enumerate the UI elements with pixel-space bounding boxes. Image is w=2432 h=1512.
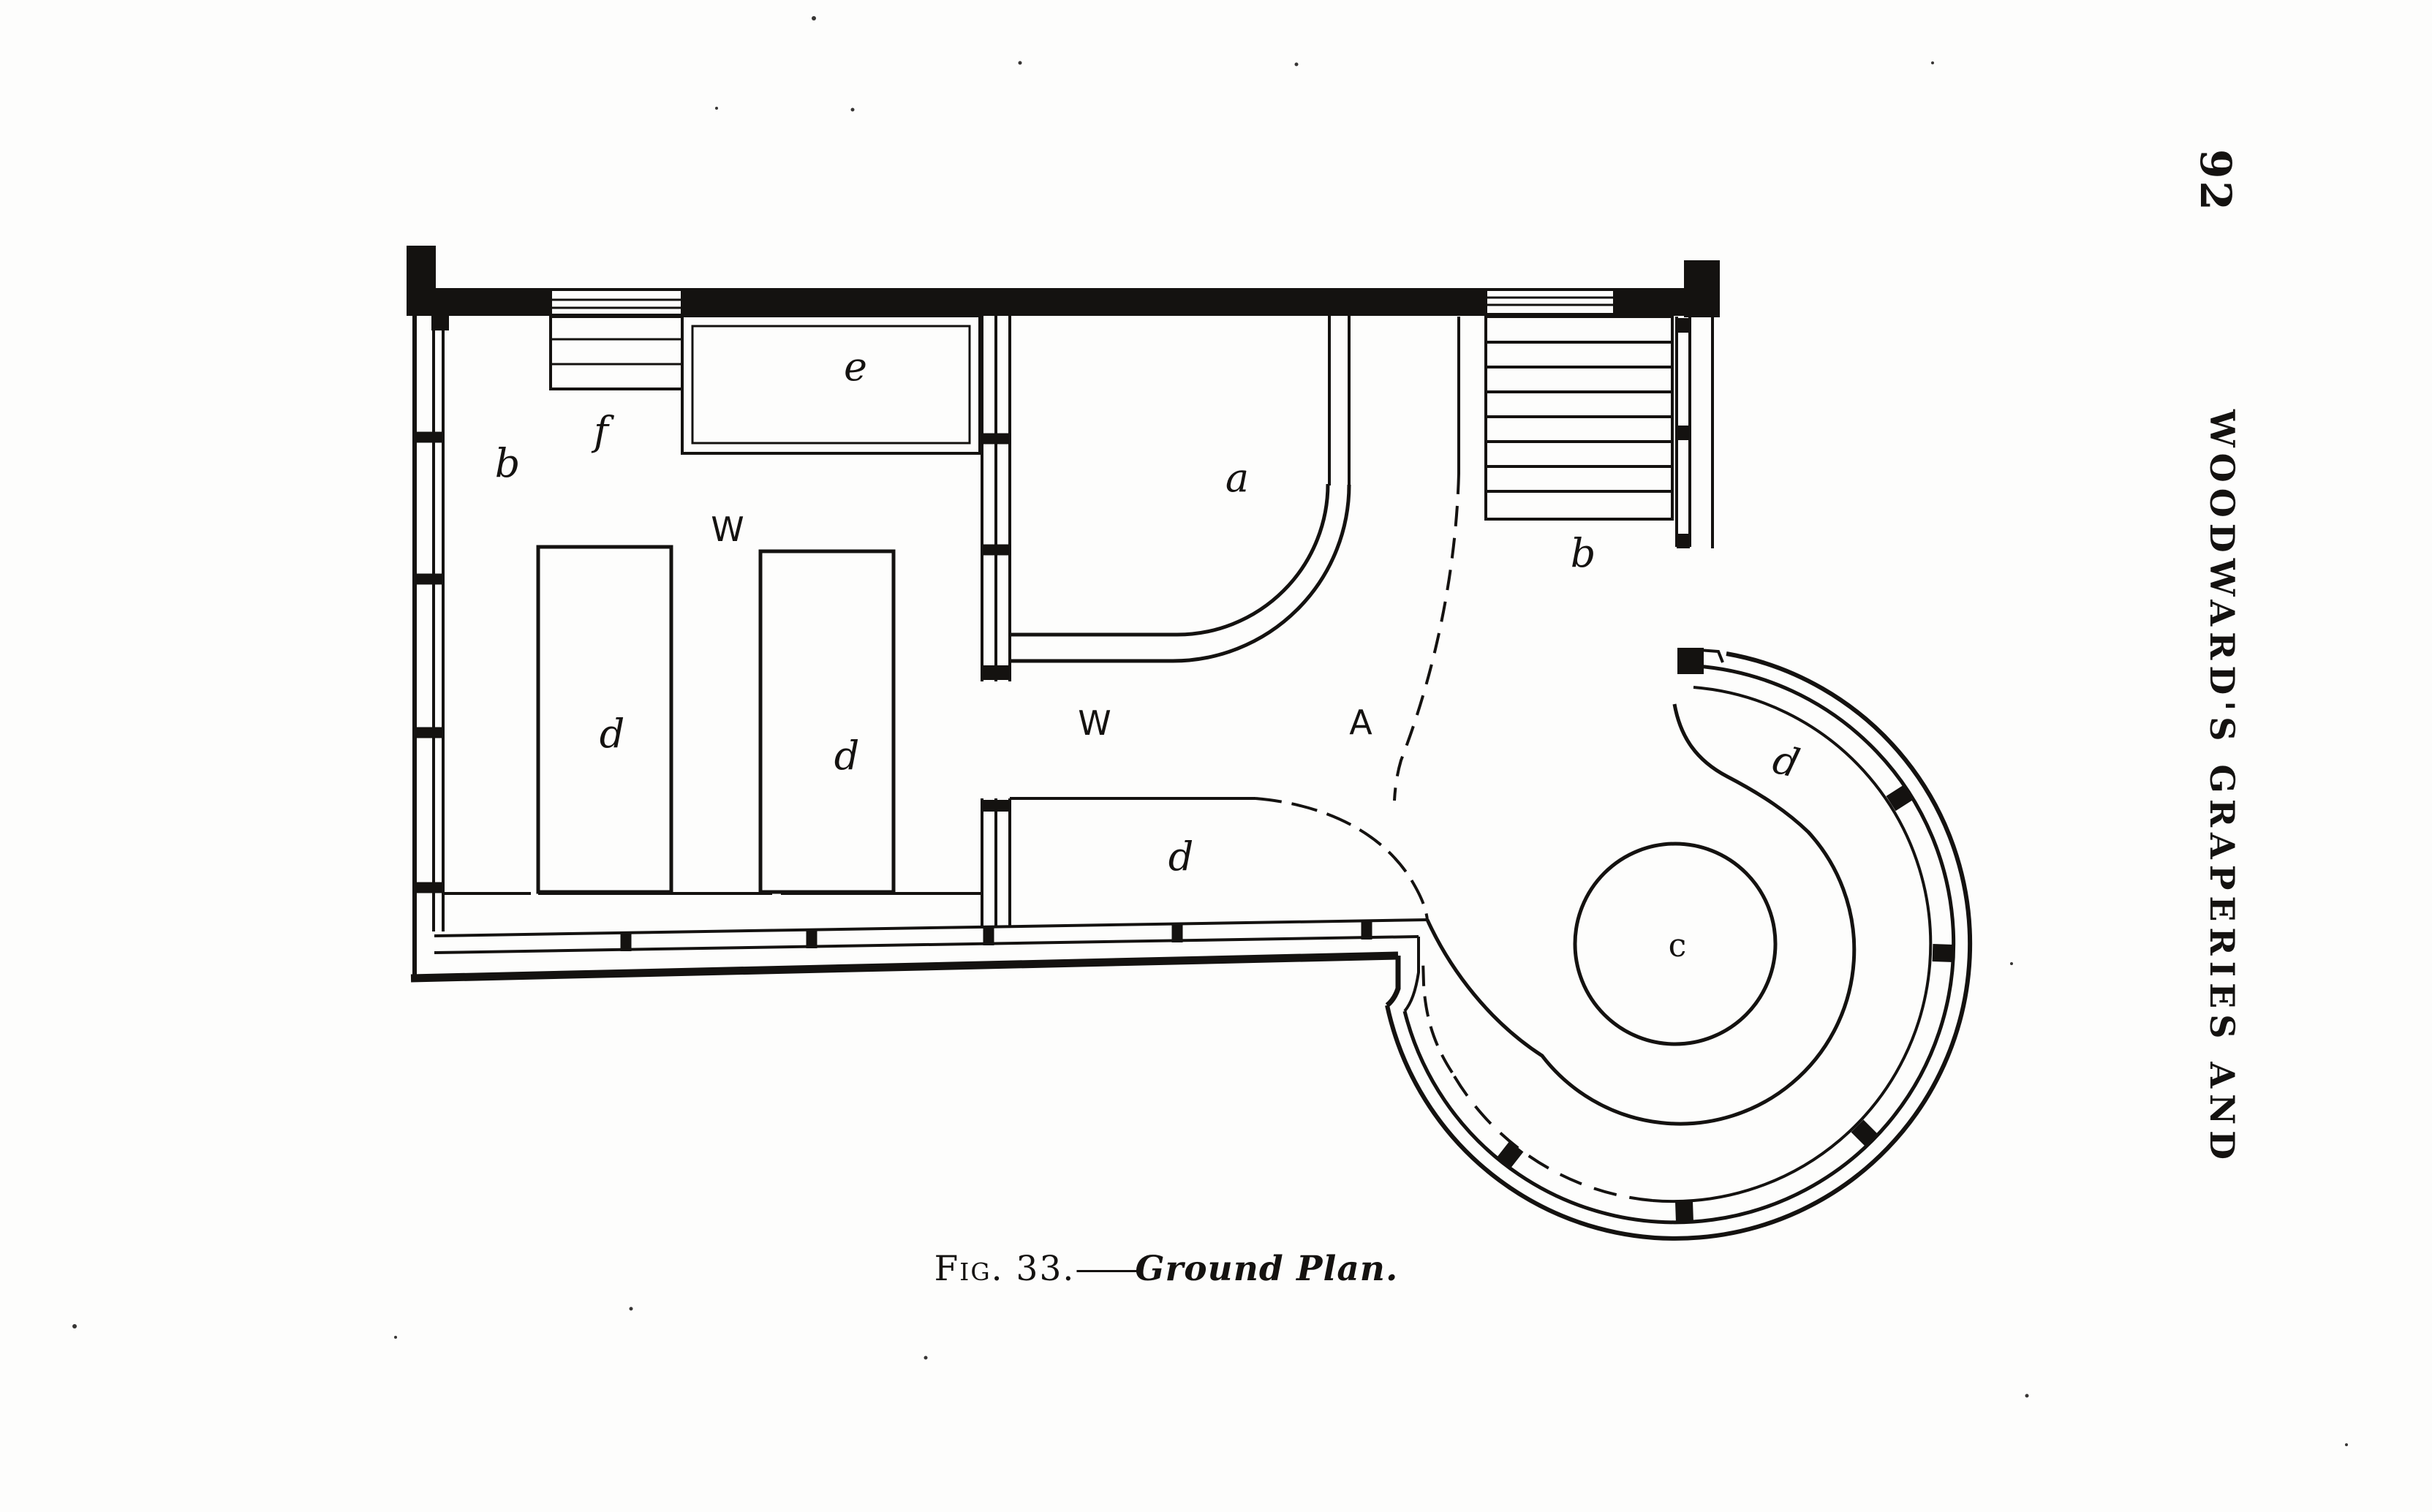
- room-a-bottom-inner-curve: [1010, 484, 1328, 635]
- pier-right: [760, 551, 894, 892]
- top-wall-segment-right: [1615, 288, 1685, 316]
- label-stairs-b: b: [1571, 530, 1596, 576]
- stairs-walk-curve: [1394, 474, 1459, 801]
- top-wall-right-post: [1684, 260, 1720, 317]
- bottom-wall-inner-line: [434, 920, 1427, 936]
- jog-outer-connector: [1387, 956, 1398, 1005]
- page-number: 92: [2191, 149, 2240, 213]
- vent-lines: [1486, 298, 1615, 305]
- steps-f: [551, 290, 682, 389]
- label-steps-f: f: [591, 408, 614, 454]
- caption-title: Ground Plan.: [1135, 1249, 1398, 1289]
- ring-walk-inner-s-curve: [1423, 959, 1452, 1073]
- label-grapery-a: a: [1226, 455, 1249, 501]
- bottom-wall-mid-line: [434, 937, 1419, 953]
- label-pier-right-d: d: [834, 733, 860, 779]
- top-wall: [407, 246, 1720, 317]
- left-wall: [414, 314, 449, 978]
- label-walk-lower-w: W: [1078, 703, 1111, 743]
- passage-d: [1010, 798, 1427, 920]
- stairs-steps: [1487, 342, 1672, 491]
- label-shed-e: e: [844, 344, 867, 390]
- room-e-outer: [682, 316, 980, 453]
- bottom-wall-outer-line: [411, 956, 1398, 978]
- left-wall-top-junction: [431, 314, 449, 330]
- wall-vent-b: [1486, 290, 1615, 314]
- wall-jog: [1387, 937, 1419, 1011]
- bottom-wall: [411, 920, 1427, 978]
- partition-lower-lines: [982, 798, 1010, 926]
- caption-dash: ——: [1075, 1249, 1135, 1289]
- label-area-a: A: [1349, 703, 1372, 742]
- ring-walk-inner-arc-dashed: [1452, 1073, 1653, 1201]
- ring-wall-end-cap: [1677, 648, 1704, 674]
- left-wall-inner-lines: [434, 316, 443, 931]
- label-pier-left-d: d: [600, 711, 625, 757]
- top-wall-segment-left: [431, 288, 551, 316]
- label-passage-d: d: [1168, 834, 1194, 880]
- stairs-b: [1394, 317, 1712, 801]
- caption-number: Fig. 33.: [934, 1249, 1076, 1289]
- grapery-a-outline: [1010, 316, 1349, 661]
- jog-inner-connector: [1405, 937, 1419, 1011]
- vent-outline: [1486, 290, 1615, 314]
- passage-top-curve: [1255, 798, 1427, 920]
- central-partition: [982, 316, 1010, 926]
- partition-upper-lines: [982, 316, 1010, 681]
- piers-d: [443, 547, 982, 893]
- left-wall-ties: [414, 437, 445, 888]
- room-e: [682, 316, 980, 453]
- ring-wall-ties: [1503, 792, 1954, 1222]
- label-ring-walk-d: d: [1768, 736, 1804, 787]
- top-wall-segment-main: [682, 288, 1486, 316]
- running-head: WOODWARD'S GRAPERIES AND: [2202, 409, 2242, 1165]
- label-walk-upper-w: W: [711, 510, 744, 549]
- label-round-house-c: c: [1669, 927, 1687, 964]
- scanned-book-page: b f e W a b d d W A d d c Fig. 33.——Grou…: [0, 0, 2432, 1512]
- figure-caption: Fig. 33.——Ground Plan.: [903, 1249, 1430, 1289]
- room-e-inner: [692, 326, 970, 443]
- label-room-b: b: [495, 440, 521, 486]
- stairs-right-rail-ties: [1677, 325, 1690, 541]
- steps-f-lines: [551, 300, 682, 364]
